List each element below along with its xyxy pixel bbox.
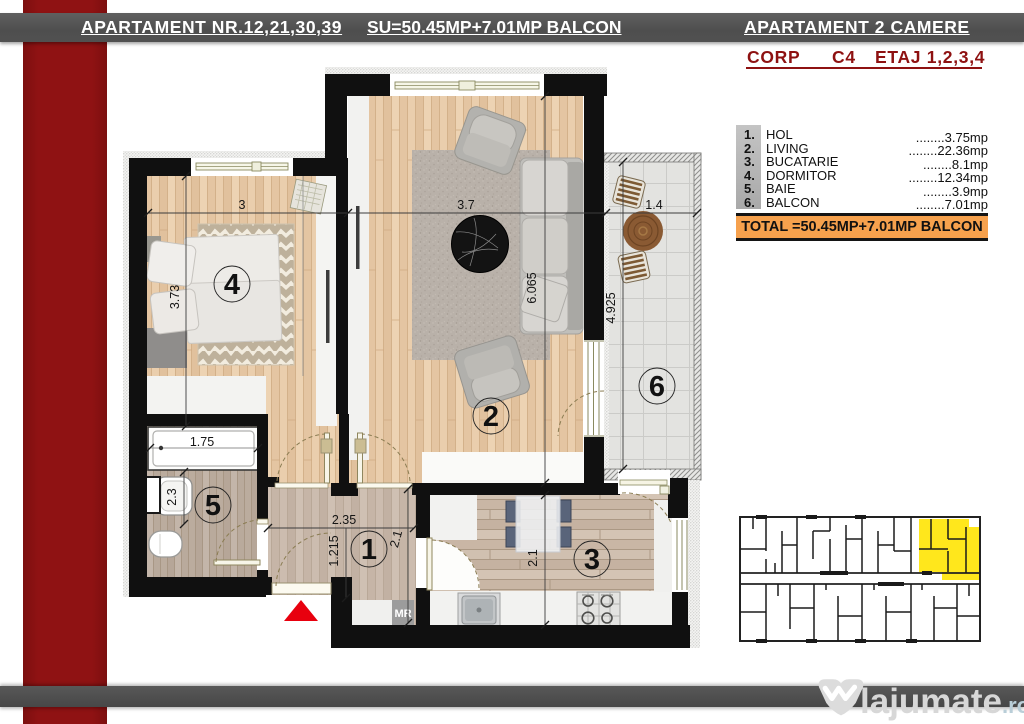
svg-text:3.7: 3.7 — [457, 198, 474, 212]
svg-text:2.1: 2.1 — [526, 549, 540, 566]
svg-text:3.73: 3.73 — [168, 285, 182, 309]
svg-text:1.215: 1.215 — [327, 535, 341, 566]
svg-text:5: 5 — [205, 490, 221, 522]
svg-text:2.3: 2.3 — [165, 488, 179, 505]
svg-text:3: 3 — [584, 544, 600, 576]
svg-text:2.35: 2.35 — [332, 513, 356, 527]
svg-text:6.065: 6.065 — [525, 272, 539, 303]
svg-text:1.4: 1.4 — [645, 198, 662, 212]
svg-text:MR: MR — [394, 608, 411, 620]
svg-text:3: 3 — [239, 198, 246, 212]
svg-text:2: 2 — [483, 401, 499, 433]
svg-text:1.75: 1.75 — [190, 435, 214, 449]
svg-text:4.925: 4.925 — [604, 292, 618, 323]
svg-text:1: 1 — [361, 534, 377, 566]
svg-text:4: 4 — [224, 269, 240, 301]
svg-text:6: 6 — [649, 371, 665, 403]
